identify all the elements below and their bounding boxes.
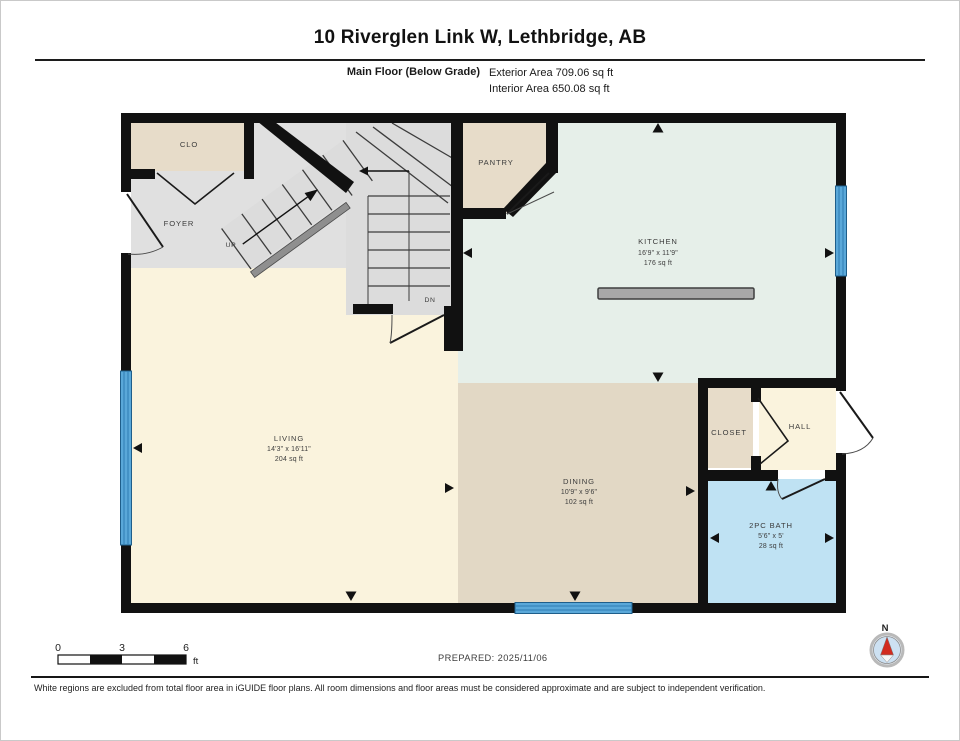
label-foyer: FOYER xyxy=(164,219,195,228)
label-up: UP xyxy=(226,242,237,249)
label-clo: CLO xyxy=(180,140,198,149)
wall-top xyxy=(121,113,846,123)
wall-right-1 xyxy=(836,113,846,186)
label-pantry: PANTRY xyxy=(478,158,514,167)
wall-closet-right-bottom xyxy=(751,456,761,470)
wall-closet-left xyxy=(698,378,708,481)
wall-clo-stub xyxy=(131,169,155,179)
wall-stairwell-stub xyxy=(444,306,463,351)
label-kitchen-area: 176 sq ft xyxy=(644,260,672,267)
label-dining-dims: 10'9" x 9'6" xyxy=(561,489,598,496)
compass-north-label: N xyxy=(882,623,889,634)
scale-bar: 0 3 6 ft xyxy=(55,642,199,667)
window-left xyxy=(121,371,132,545)
scale-unit-label: ft xyxy=(193,656,199,667)
wall-bottom-right xyxy=(632,603,846,613)
wall-left-2 xyxy=(121,253,131,371)
window-bottom xyxy=(515,603,632,614)
scale-tick-6: 6 xyxy=(183,642,189,654)
wall-stair-bottom xyxy=(353,304,393,314)
compass: N xyxy=(871,623,903,666)
label-living: LIVING xyxy=(274,434,304,443)
wall-hall-top xyxy=(698,378,846,388)
floor-plan-svg: CLO FOYER UP DN PANTRY KITCHEN 16'9" x 1… xyxy=(1,1,960,741)
floor-plan-page: 10 Riverglen Link W, Lethbridge, AB Main… xyxy=(0,0,960,741)
label-dining: DINING xyxy=(563,477,595,486)
window-right xyxy=(836,186,847,276)
label-kitchen-dims: 16'9" x 11'9" xyxy=(638,250,678,257)
wall-pantry-bottom xyxy=(456,208,506,219)
label-dining-area: 102 sq ft xyxy=(565,499,593,506)
wall-left-1 xyxy=(121,113,131,192)
label-living-area: 204 sq ft xyxy=(275,456,303,463)
wall-right-2 xyxy=(836,276,846,391)
scale-tick-3: 3 xyxy=(119,642,125,654)
wall-clo-right xyxy=(244,113,254,179)
wall-bath-top-right xyxy=(825,470,846,481)
scale-bar-segment xyxy=(90,655,122,664)
wall-bottom-left xyxy=(121,603,515,613)
wall-pantry-right xyxy=(546,113,558,173)
label-bath-area: 28 sq ft xyxy=(759,543,783,550)
label-living-dims: 14'3" x 16'11" xyxy=(267,446,311,453)
label-dn: DN xyxy=(424,297,435,304)
label-bath-dims: 5'6" x 5' xyxy=(758,533,784,540)
room-floors xyxy=(131,123,836,603)
label-kitchen: KITCHEN xyxy=(638,237,678,246)
room-bath-floor xyxy=(706,479,836,603)
door-hall-exterior xyxy=(840,392,873,454)
disclaimer-text: White regions are excluded from total fl… xyxy=(34,683,939,693)
prepared-label: PREPARED: 2025/11/06 xyxy=(438,653,547,663)
label-bath: 2PC BATH xyxy=(749,521,793,530)
label-closet: CLOSET xyxy=(711,428,747,437)
footer-divider xyxy=(31,676,929,678)
kitchen-island xyxy=(598,288,754,299)
scale-bar-segment xyxy=(154,655,186,664)
wall-bath-top-left xyxy=(698,470,778,481)
wall-bath-left xyxy=(698,470,708,603)
wall-left-3 xyxy=(121,545,131,613)
label-hall: HALL xyxy=(789,422,812,431)
scale-tick-0: 0 xyxy=(55,642,61,654)
